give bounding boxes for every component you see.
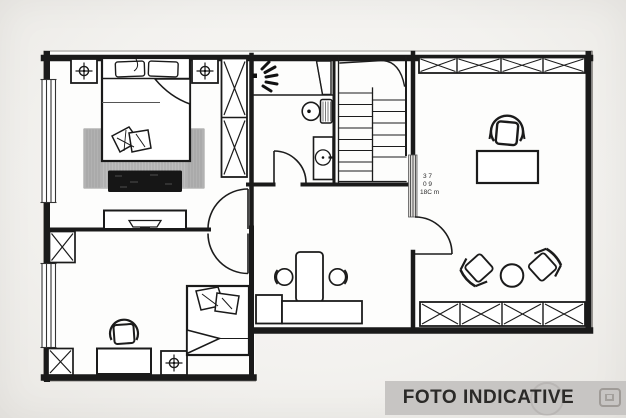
dresser <box>104 211 186 230</box>
dining-table <box>296 252 323 302</box>
stool <box>275 269 293 285</box>
tv <box>129 221 161 228</box>
desk <box>97 349 151 375</box>
single-bed <box>187 286 249 355</box>
window-band-bottom <box>420 302 585 326</box>
stool <box>329 269 347 285</box>
wall-hatch-segment <box>409 155 418 217</box>
floor-plan-drawing: 3 7 0 9 18C m <box>0 0 626 418</box>
window-bedroom2 <box>41 263 57 348</box>
sink <box>314 137 334 180</box>
dimension-note-line: 0 9 <box>423 181 432 188</box>
dimension-note-line: 18C m <box>420 189 439 196</box>
ceiling-light-icon <box>192 59 218 83</box>
desk <box>477 151 538 183</box>
coffee-table <box>501 264 524 287</box>
dimension-note-line: 3 7 <box>423 173 432 180</box>
watermark-banner: FOTO INDICATIVE <box>385 381 626 415</box>
closet-box <box>50 232 76 263</box>
camera-logo-icon <box>599 388 621 407</box>
ceiling-light-icon <box>161 351 187 375</box>
closet-box <box>48 349 73 376</box>
wardrobe <box>222 59 248 178</box>
floor-plan-photo: 3 7 0 9 18C m FOTO INDICATIVE <box>0 0 626 418</box>
window-bedroom1 <box>41 79 57 203</box>
ghost-logo-circle <box>530 382 564 416</box>
ceiling-light-icon <box>71 59 97 83</box>
window-band-top <box>419 58 585 74</box>
bench <box>108 171 182 193</box>
